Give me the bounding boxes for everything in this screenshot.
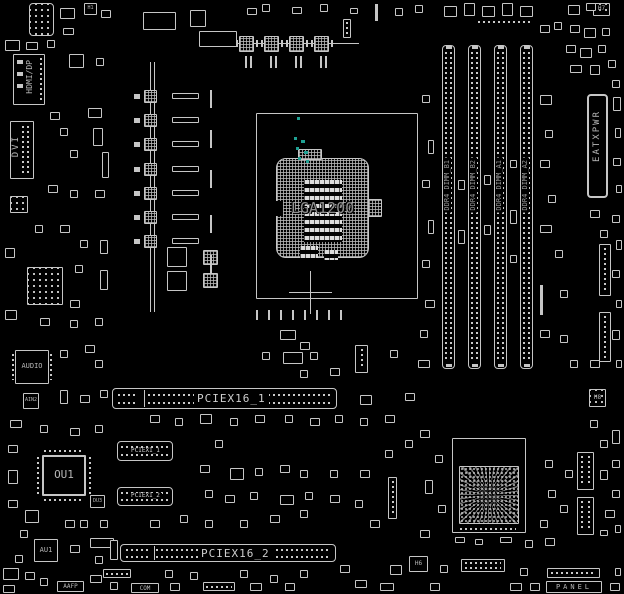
smd-component xyxy=(548,195,556,203)
mosfet xyxy=(239,36,254,52)
smd-component xyxy=(475,539,483,545)
smd-component xyxy=(134,167,140,172)
smd-component xyxy=(455,537,465,543)
smd-component xyxy=(27,126,29,174)
smd-component xyxy=(25,510,39,523)
smd-component xyxy=(361,349,363,369)
smd-component xyxy=(180,515,188,523)
smd-component xyxy=(154,546,155,560)
smd-component xyxy=(110,582,118,590)
smd-component xyxy=(96,58,104,66)
smd-component xyxy=(300,470,308,478)
smd-component xyxy=(150,520,160,528)
smd-component xyxy=(275,56,277,68)
pcie-x1-1-label: PCIEX1_1 xyxy=(129,448,162,454)
smd-component xyxy=(465,562,501,564)
smd-component xyxy=(444,6,457,17)
smd-component xyxy=(392,481,394,515)
smd-component xyxy=(581,501,583,531)
smd-component xyxy=(554,22,562,30)
smd-component xyxy=(50,354,52,380)
smd-component xyxy=(250,56,252,68)
smd-component xyxy=(121,454,169,456)
smd-component xyxy=(570,360,578,368)
smd-component xyxy=(199,31,237,47)
smd-component xyxy=(330,470,338,478)
com-label: COM xyxy=(131,586,159,592)
smd-component xyxy=(292,7,302,14)
pcie-x16-1-label: PCIEX16_1 xyxy=(194,393,269,404)
smd-component xyxy=(300,570,308,578)
smd-component xyxy=(93,128,103,146)
smd-component xyxy=(598,45,606,53)
smd-component xyxy=(420,530,430,538)
smd-component xyxy=(588,501,590,531)
dvi-label: DVI xyxy=(12,135,21,157)
smd-component xyxy=(65,520,75,528)
smd-component xyxy=(540,95,552,105)
smd-component xyxy=(230,468,244,480)
smd-component xyxy=(415,5,423,13)
smd-component xyxy=(70,428,80,436)
smd-component xyxy=(568,5,580,15)
smd-component xyxy=(75,265,83,273)
smd-component xyxy=(27,267,63,305)
smd-component xyxy=(88,108,102,118)
smd-component xyxy=(510,583,522,591)
smd-component xyxy=(95,190,105,198)
smd-component xyxy=(106,573,128,575)
smd-component xyxy=(590,65,600,75)
smd-component xyxy=(8,500,18,508)
smd-component xyxy=(540,285,543,315)
smd-component xyxy=(320,56,322,68)
smd-component xyxy=(565,470,573,478)
smd-component xyxy=(203,273,218,288)
smd-component xyxy=(600,230,608,238)
smd-component xyxy=(560,290,568,298)
smd-component xyxy=(37,457,39,494)
smd-component xyxy=(616,300,622,308)
smd-component xyxy=(3,585,15,593)
smd-component xyxy=(548,490,556,498)
smd-component xyxy=(280,495,294,505)
smd-component xyxy=(70,300,80,308)
smd-component xyxy=(310,418,320,426)
h6-label: H6 xyxy=(409,561,428,567)
smd-component xyxy=(306,160,309,163)
smd-component xyxy=(304,151,308,154)
smd-component xyxy=(385,450,393,458)
smd-component xyxy=(545,130,553,138)
smd-component xyxy=(590,210,600,218)
smd-component xyxy=(510,255,517,263)
smd-component xyxy=(478,21,530,23)
smd-component xyxy=(613,158,621,166)
smd-component xyxy=(472,46,478,49)
smd-component xyxy=(540,160,550,168)
smd-component xyxy=(360,395,372,405)
smd-component xyxy=(306,40,308,47)
smd-component xyxy=(205,520,213,528)
smd-component xyxy=(510,160,517,168)
smd-component xyxy=(616,185,622,193)
smd-component xyxy=(425,480,433,494)
smd-component xyxy=(588,456,590,486)
smd-component xyxy=(428,140,434,154)
smd-component xyxy=(40,58,42,102)
smd-component xyxy=(48,185,58,193)
smd-component xyxy=(40,318,50,326)
smd-component xyxy=(280,310,282,320)
smd-component xyxy=(95,360,103,368)
dimm-slot-b1-label: DDR4 DIMM_B1 xyxy=(444,158,451,213)
smd-component xyxy=(280,465,290,473)
smd-component xyxy=(380,583,394,591)
smd-component xyxy=(446,364,452,367)
smd-component xyxy=(422,95,430,103)
smd-component xyxy=(205,490,213,498)
smd-component xyxy=(551,572,596,574)
smd-component xyxy=(29,3,54,36)
smd-component xyxy=(340,565,350,573)
smd-component xyxy=(570,65,582,73)
smd-component xyxy=(26,42,38,50)
smd-component xyxy=(502,3,513,16)
smd-component xyxy=(134,118,140,123)
smd-component xyxy=(170,583,180,591)
smd-component xyxy=(300,246,318,258)
ain2-label: AIN2 xyxy=(23,398,39,403)
smd-component xyxy=(510,210,517,224)
smd-component xyxy=(604,316,606,358)
smd-component xyxy=(604,248,606,292)
usb-header xyxy=(461,559,505,572)
smd-component xyxy=(10,420,22,428)
smd-component xyxy=(44,450,84,452)
smd-component xyxy=(60,225,70,233)
smd-component xyxy=(524,364,530,367)
mosfet xyxy=(144,211,157,224)
panel-label: PANEL xyxy=(546,584,602,591)
smd-component xyxy=(420,330,428,338)
smd-component xyxy=(44,499,84,501)
smd-component xyxy=(500,537,512,543)
smd-component xyxy=(200,414,212,424)
smd-component xyxy=(17,60,23,64)
smd-component xyxy=(47,40,55,48)
smd-component xyxy=(95,556,103,564)
smd-component xyxy=(134,215,140,220)
smd-component xyxy=(385,415,395,423)
smd-component xyxy=(320,4,328,12)
smd-component xyxy=(613,97,621,111)
smd-component xyxy=(12,354,14,380)
cpu-socket-tab xyxy=(368,199,382,217)
smd-component xyxy=(167,271,187,291)
smd-component xyxy=(370,520,380,528)
smd-component xyxy=(300,370,308,378)
smd-component xyxy=(484,175,491,185)
smd-component xyxy=(69,54,84,68)
du3-label: DU3 xyxy=(90,499,105,504)
mosfet xyxy=(289,36,304,52)
smd-component xyxy=(25,572,35,580)
smd-component xyxy=(200,465,210,473)
smd-component xyxy=(40,425,48,433)
smd-component xyxy=(300,510,308,518)
alignment-crosshair xyxy=(310,271,311,314)
smd-component xyxy=(328,310,330,320)
ou1-label: OU1 xyxy=(42,469,86,480)
smd-component xyxy=(615,568,621,576)
smd-component xyxy=(584,28,596,38)
smd-component xyxy=(590,420,598,428)
choke xyxy=(172,238,199,244)
mosfet xyxy=(314,36,329,52)
smd-component xyxy=(70,150,78,158)
smd-component xyxy=(435,455,443,463)
h8-label: H8 xyxy=(589,395,606,401)
choke xyxy=(172,166,199,172)
dimm-slot-a1-label: DDR4 DIMM_A1 xyxy=(496,158,503,213)
smd-component xyxy=(295,56,297,68)
smd-component xyxy=(438,505,446,513)
smd-component xyxy=(90,575,102,583)
smd-component xyxy=(255,415,265,423)
smd-component xyxy=(63,28,74,35)
smd-component xyxy=(85,345,95,353)
smd-component xyxy=(296,147,299,150)
smd-component xyxy=(280,330,296,340)
smd-component xyxy=(520,568,528,576)
mosfet xyxy=(144,138,157,151)
smd-component xyxy=(395,8,403,16)
smd-component xyxy=(134,142,140,147)
smd-component xyxy=(50,112,60,120)
mosfet xyxy=(144,114,157,127)
smd-component xyxy=(230,418,238,426)
smd-component xyxy=(100,390,108,398)
smd-component xyxy=(540,330,550,338)
smd-component xyxy=(425,300,435,308)
smd-component xyxy=(276,201,283,216)
smd-component xyxy=(540,520,548,528)
smd-component xyxy=(89,457,91,494)
smd-component xyxy=(608,60,616,68)
smd-component xyxy=(301,140,305,143)
mosfet xyxy=(144,187,157,200)
smd-component xyxy=(324,250,338,260)
sata-port xyxy=(577,452,594,490)
smd-component xyxy=(292,310,294,320)
dimm-slot-a2-label: DDR4 DIMM_A2 xyxy=(522,158,529,213)
smd-component xyxy=(355,500,363,508)
smd-component xyxy=(250,583,262,591)
smd-component xyxy=(80,520,88,528)
smd-component xyxy=(615,525,621,533)
smd-component xyxy=(612,215,620,223)
smd-component xyxy=(360,470,370,478)
smd-component xyxy=(210,215,212,233)
smd-component xyxy=(15,555,23,563)
smd-component xyxy=(137,392,144,406)
smd-component xyxy=(612,270,620,278)
smd-component xyxy=(210,170,212,188)
smd-component xyxy=(256,310,258,320)
mosfet xyxy=(144,163,157,176)
smd-component xyxy=(285,415,293,423)
smd-component xyxy=(121,499,169,501)
smd-component xyxy=(8,445,18,453)
choke xyxy=(172,190,199,196)
cpu-socket-tab xyxy=(298,149,322,160)
smd-component xyxy=(240,520,248,528)
smd-component xyxy=(545,460,553,468)
smd-component xyxy=(300,56,302,68)
smd-component xyxy=(300,342,310,350)
smd-component xyxy=(110,540,118,560)
smd-component xyxy=(262,4,270,12)
smd-component xyxy=(560,505,568,513)
smd-component xyxy=(281,40,283,47)
smd-component xyxy=(5,40,20,51)
mosfet xyxy=(264,36,279,52)
smd-component xyxy=(498,364,504,367)
smd-component xyxy=(310,352,318,360)
smd-component xyxy=(612,490,620,498)
smd-component xyxy=(190,10,206,27)
smd-component xyxy=(560,335,568,343)
smd-component xyxy=(482,6,495,17)
smd-component xyxy=(270,56,272,68)
smd-component xyxy=(270,575,278,583)
smd-component xyxy=(390,565,402,575)
choke xyxy=(172,117,199,123)
smd-component xyxy=(586,3,596,11)
smd-component xyxy=(298,157,301,160)
smd-component xyxy=(22,126,24,174)
smd-component xyxy=(143,12,176,30)
smd-component xyxy=(605,510,615,518)
smd-component xyxy=(20,530,28,538)
smd-component xyxy=(60,8,75,19)
smd-component xyxy=(580,48,592,58)
smd-component xyxy=(175,418,183,426)
smd-component xyxy=(261,40,263,47)
smd-component xyxy=(210,90,212,108)
smd-component xyxy=(610,583,620,591)
smd-component xyxy=(60,390,68,404)
smd-component xyxy=(581,456,583,486)
smd-component xyxy=(5,248,15,258)
smd-component xyxy=(616,360,622,368)
pcie-x1-2-label: PCIEX1_2 xyxy=(129,493,162,499)
motherboard-layout-diagram: LGA1200 DDR4 DIMM_B1 DDR4 DIMM_B2 DDR4 D… xyxy=(0,0,624,594)
smd-component xyxy=(570,25,580,33)
smd-component xyxy=(484,225,491,235)
smd-component xyxy=(285,583,295,591)
mosfet xyxy=(144,90,157,103)
smd-component xyxy=(255,468,263,476)
smd-component xyxy=(134,191,140,196)
smd-component xyxy=(331,40,333,47)
smd-component xyxy=(465,567,501,569)
smd-component xyxy=(355,580,367,588)
smd-component xyxy=(405,440,413,448)
smd-component xyxy=(460,528,516,530)
smd-component xyxy=(330,495,340,503)
smd-component xyxy=(566,45,576,53)
smd-component xyxy=(5,310,17,320)
front-audio-label: AAFP xyxy=(57,584,84,590)
smd-component xyxy=(305,492,313,500)
smd-component xyxy=(70,545,80,553)
smd-component xyxy=(240,570,248,578)
smd-component xyxy=(304,310,306,320)
smd-component xyxy=(245,56,247,68)
smd-component xyxy=(612,330,620,340)
smd-component xyxy=(340,310,342,320)
smd-component xyxy=(17,84,23,88)
smd-component xyxy=(70,320,78,328)
smd-component xyxy=(524,46,530,49)
smd-component xyxy=(458,230,465,244)
smd-component xyxy=(600,470,608,480)
smd-component xyxy=(420,430,430,438)
smd-component xyxy=(60,128,68,136)
smd-component xyxy=(70,190,78,198)
smd-component xyxy=(95,425,103,433)
smd-component xyxy=(545,538,555,546)
smd-component xyxy=(270,515,280,523)
smd-component xyxy=(422,180,430,188)
smd-component xyxy=(418,360,430,368)
smd-component xyxy=(294,137,297,140)
smd-component xyxy=(422,260,430,268)
audio-codec-label: AUDIO xyxy=(15,363,49,370)
smd-component xyxy=(236,40,238,47)
smd-component xyxy=(167,247,187,267)
smd-component xyxy=(100,270,108,290)
sata-port xyxy=(577,497,594,535)
smd-component xyxy=(80,395,90,403)
smd-component xyxy=(215,440,223,448)
smd-component xyxy=(520,6,533,17)
smd-component xyxy=(464,3,475,16)
h1-label: H1 xyxy=(84,6,97,11)
choke xyxy=(172,141,199,147)
smd-component xyxy=(360,418,368,426)
choke xyxy=(172,214,199,220)
smd-component xyxy=(458,180,465,190)
smd-component xyxy=(405,393,415,401)
smd-component xyxy=(350,8,358,14)
smd-component xyxy=(134,94,140,99)
smd-component xyxy=(190,572,198,580)
smd-component xyxy=(540,225,552,233)
smd-component xyxy=(100,240,108,254)
smd-component xyxy=(316,310,318,320)
smd-component xyxy=(256,40,258,47)
smd-component xyxy=(101,10,111,18)
smd-component xyxy=(612,80,620,88)
hdmi-dp-label: HDMI/DP xyxy=(26,60,34,94)
smd-component xyxy=(10,196,28,213)
smd-component xyxy=(150,415,160,423)
smd-component xyxy=(210,255,212,273)
smd-component xyxy=(144,390,145,407)
